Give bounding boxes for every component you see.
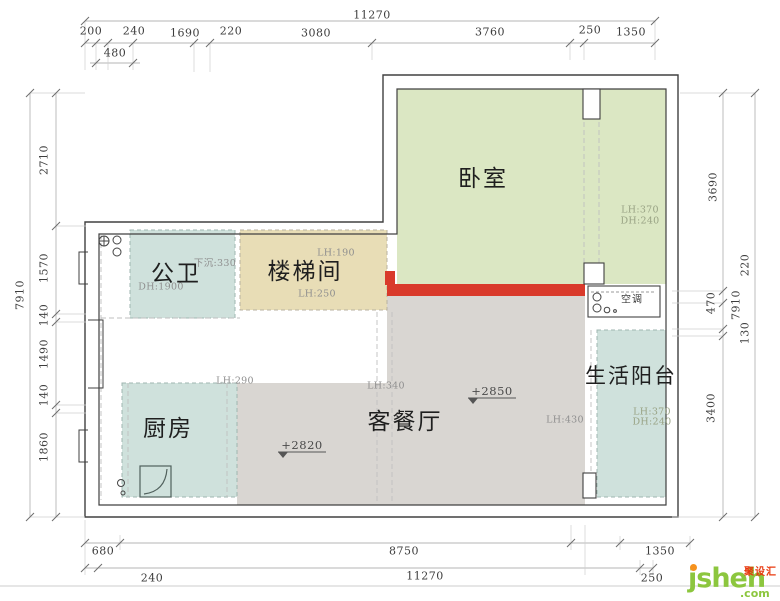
kitchen-label: 厨房 [143, 409, 193, 443]
logo-tld-text: .com [740, 587, 770, 600]
dim-left-2710: 2710 [38, 145, 51, 175]
bathroom-dh: DH:1900 [138, 282, 183, 293]
ac-label: 空调 [621, 291, 643, 306]
bedroom-lh: LH:370 [621, 205, 659, 216]
dim-bottom-8750: 8750 [389, 545, 419, 558]
dim-left-1490: 1490 [38, 339, 51, 369]
dim-top-total: 11270 [353, 9, 391, 22]
dim-top-220: 220 [220, 25, 243, 38]
dim-left-1570: 1570 [38, 253, 51, 283]
floor-plan-drawing [0, 0, 780, 601]
jsheh-logo[interactable]: jsheh 聚设汇 .com [688, 563, 780, 600]
living-dining-area [237, 296, 585, 505]
dim-bottom-11270: 11270 [406, 570, 444, 583]
living-level-mark: +2850 [471, 384, 512, 398]
bathroom-sunken: 下沉:330 [194, 255, 236, 269]
dim-top-240: 240 [123, 25, 146, 38]
bedroom-dh: DH:240 [620, 216, 659, 227]
living-lh-left: LH:340 [367, 381, 405, 392]
living-lh-right: LH:430 [546, 415, 584, 426]
bedroom-label: 卧室 [458, 159, 508, 193]
logo-chinese-text: 聚设汇 [744, 563, 777, 578]
kitchen-level-mark: +2820 [281, 438, 322, 452]
dim-left-total: 7910 [14, 280, 27, 310]
dim-top-1350: 1350 [616, 26, 646, 39]
dim-right-130: 130 [739, 322, 752, 345]
dim-left-140a: 140 [38, 304, 51, 327]
dim-left-1860: 1860 [38, 432, 51, 462]
dim-bottom-680: 680 [92, 545, 115, 558]
stairwell-lh-top: LH:190 [317, 248, 355, 259]
dim-bottom-240: 240 [141, 572, 164, 585]
dim-bottom-1350: 1350 [645, 545, 675, 558]
dim-right-3400: 3400 [705, 393, 718, 423]
dim-top-3080: 3080 [301, 27, 331, 40]
dim-top-200: 200 [80, 25, 103, 38]
dim-top-1690: 1690 [170, 27, 200, 40]
balcony-label: 生活阳台 [585, 360, 677, 390]
stairwell-lh-bottom: LH:250 [298, 289, 336, 300]
floor-plan-canvas: 卧室 公卫 楼梯间 厨房 客餐厅 生活阳台 空调 LH:370 DH:240 下… [0, 0, 780, 601]
dim-right-220: 220 [739, 254, 752, 277]
kitchen-lh: LH:290 [216, 376, 254, 387]
dim-right-3690: 3690 [707, 172, 720, 202]
living-dining-label: 客餐厅 [368, 402, 443, 436]
balcony-dh: DH:240 [632, 417, 671, 428]
dim-top-480: 480 [104, 47, 127, 60]
bedroom-area [397, 89, 666, 284]
dim-left-140b: 140 [38, 384, 51, 407]
dim-top-250: 250 [579, 24, 602, 37]
dim-right-total: 7910 [730, 290, 743, 320]
dim-right-470: 470 [705, 292, 718, 315]
dim-bottom-250: 250 [641, 572, 664, 585]
logo-dot-icon [690, 564, 697, 571]
dim-top-3760: 3760 [475, 26, 505, 39]
